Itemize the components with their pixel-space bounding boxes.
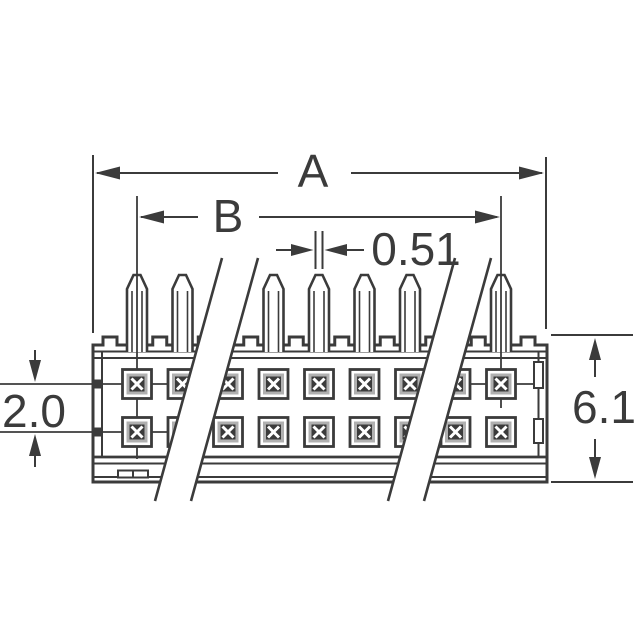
dim-051-label: 0.51 [371,223,461,275]
dimension-row-pitch: 2.0 [2,350,66,467]
dim-b-arrow-right [475,211,500,224]
pin [400,275,420,352]
pin [264,275,284,352]
dim-051-arrow-left [291,244,314,256]
pin [309,275,329,352]
dim-a-label: A [298,145,329,197]
dim-051-witness-lines [316,231,323,269]
left-wall-tab-bottom [92,428,101,437]
dim-b-label: B [213,190,244,242]
technical-drawing-canvas: A B 0.51 2.0 6.1 [0,0,640,640]
right-wall-slot-top [534,362,543,388]
pin [355,275,375,352]
dim-20-arrow-up [29,434,41,456]
right-wall-slot-bottom [534,419,543,443]
dim-61-arrow-up [589,338,601,360]
dimension-pin-tip: 0.51 [276,223,461,275]
left-wall-tab-top [92,380,101,389]
dim-a-arrow-right [519,167,544,180]
dim-a-arrow-left [95,167,120,180]
dim-b-arrow-left [139,211,164,224]
dim-61-label: 6.1 [572,381,636,433]
pin-header-drawing: A B 0.51 2.0 6.1 [0,0,640,640]
connector-body [93,337,547,482]
dim-051-arrow-right [325,244,348,256]
polarization-key [118,471,148,478]
dim-20-label: 2.0 [2,385,66,437]
dimension-body-height: 6.1 [551,335,636,482]
dim-20-arrow-down [29,360,41,382]
dim-61-arrow-down [589,457,601,479]
pin [173,275,193,352]
